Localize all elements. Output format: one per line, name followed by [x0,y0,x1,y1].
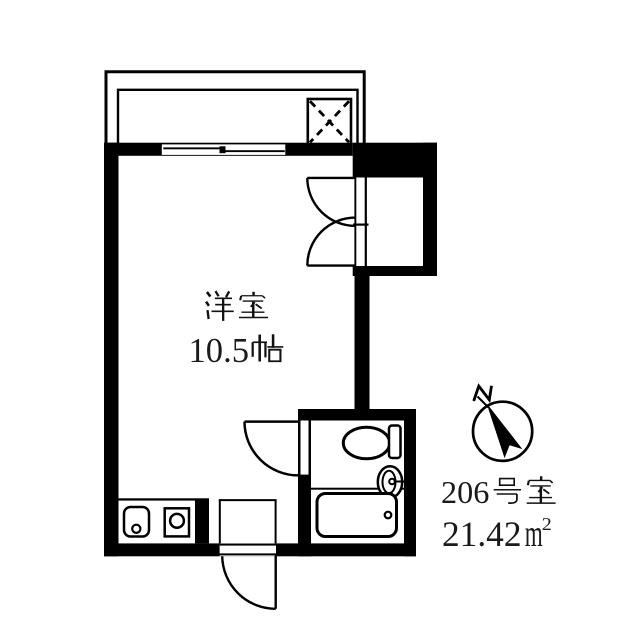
svg-text:206: 206 [441,474,489,510]
svg-text:21.42: 21.42 [442,514,522,554]
svg-text:10.5: 10.5 [189,331,250,370]
svg-text:2: 2 [542,514,552,534]
svg-text:m: m [525,513,543,555]
